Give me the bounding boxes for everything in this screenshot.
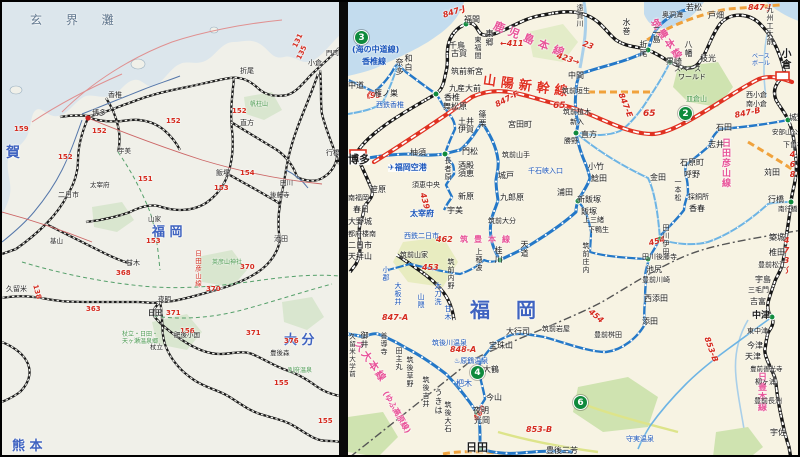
map-label: 筑前新宮 [451,68,483,76]
map-label: 中道 [348,82,364,90]
map-label: 鯰田 [591,175,607,183]
map-label: 夜明 [158,296,171,303]
map-label: 甘木 [126,260,140,267]
map-label: 宇美 [118,148,131,155]
map-label: 豊後三芳 [546,447,578,455]
map-label: 春日 [353,206,369,214]
map-label: ←411 [500,40,523,48]
map-label: 吉富 [750,298,766,306]
map-label: 宮田町 [508,121,532,129]
map-label: 中間 [568,72,584,80]
map-label: 370 [206,286,221,293]
map-label: 天津 [745,353,761,361]
map-label: 筑前大分 [488,218,516,225]
map-label: 太宰府 [410,210,434,218]
map-label: 山隈 [417,293,424,309]
map-label: 志井 [708,141,724,149]
map-label: 戸畑 [708,12,724,20]
map-label: 玄 界 灘 [30,14,124,26]
map-label: 363 [86,306,101,313]
map-label: 筑後草野 [406,356,413,388]
map-label: 枝光 [700,55,716,63]
map-label: 豊後森 [270,350,290,357]
map-label: 添田 [642,318,658,326]
map-label: 三毛門 [748,287,769,294]
map-label: 筑豊本線 [460,236,516,244]
map-label: 西添田 [644,295,668,303]
map-label: 847-J [442,5,466,20]
map-label: 香椎 [444,94,460,102]
map-label: 筑前内野 [447,258,454,290]
map-label: ✈福岡空港 [388,164,427,172]
map-label: 847-F [494,90,520,109]
map-label: 新原 [458,193,474,201]
map-label: 847-A [382,314,408,322]
map-label: 日田彦山線 [194,250,201,288]
map-label: 奈多 [395,58,403,76]
map-label: 奥洞海 [662,12,683,19]
map-label: 小倉 [308,60,322,67]
map-label: 大行司 [506,328,530,336]
map-label: 久留米大学前 [348,333,355,378]
map-label: 折尾 [240,68,254,75]
numbered-circle-marker: 4 [470,365,485,380]
map-label: 847-B [734,107,761,120]
map-label: 西小倉 [746,92,767,99]
map-label: 筑前山家 [400,252,428,259]
map-label: (ゆふ高原線) [381,390,412,435]
map-label: 遠賀川 [576,4,583,28]
panel-divider [339,2,348,457]
map-label: 桂川 [494,246,502,264]
map-label: 浦田 [557,189,573,197]
map-label: 371 [166,310,181,317]
map-label: 152 [92,128,107,135]
map-label: 筑後吉井 [422,376,429,408]
map-label: 下曽根 [783,142,800,149]
map-label: 豊前長洲 [754,398,782,405]
map-label: 上三緒 [583,217,604,224]
map-label: 155 [274,380,289,387]
map-label: 154 [240,170,255,177]
map-label: 847-E [617,92,634,119]
map-label: 雁ノ巣 [374,90,398,98]
map-label: 小郡 [382,266,389,282]
map-label: 小竹 [588,163,604,171]
map-label: 上穂波 [475,248,482,272]
map-label: 宝珠山 [489,342,513,350]
map-label: 一本松 [674,178,681,202]
map-label: 田主丸 [395,347,402,371]
map-label: 池尻 [646,266,662,274]
map-label: 皿倉山 [686,96,707,103]
map-label: 福間 [464,16,480,24]
map-label: 今山 [486,394,502,402]
map-label: 夜明 [473,407,489,415]
numbered-circle-marker: 3 [354,30,369,45]
map-label: 筑前山手 [502,152,530,159]
map-label: 太宰府 [90,182,110,189]
map-label: 新入 [570,119,584,126]
map-label: 東中津 [747,328,768,335]
map-label: 153 [214,185,229,192]
map-label: 南小倉 [746,101,767,108]
map-label: 都府楼南 [348,231,376,238]
map-label: 別府温泉 [288,368,312,374]
map-label: 久留米 [6,286,27,293]
map-label: 筑前垣生 [562,88,590,95]
map-label: 飯塚 [216,170,230,177]
map-label: 新飯塚 [577,196,601,204]
map-label: 152 [232,108,247,115]
map-label: 南行橋 [778,206,798,213]
map-label: 454 [587,308,605,325]
map-label: 篠栗 [478,110,486,128]
map-label: 賀 [6,146,20,160]
map-label: 長者原 [444,157,451,181]
map-label: ボール [752,61,770,67]
map-label: 田川 [280,180,293,187]
map-label: 439 [418,192,430,210]
map-label: 九郎原 [500,194,524,202]
map-label: 大鶴 [483,366,499,374]
map-label: 香春 [689,205,705,213]
map-label: 守実温泉 [626,436,654,443]
map-label: 853-B [702,336,718,363]
map-label: ワールド [678,74,706,81]
map-label: 大板井 [394,282,401,306]
map-label: 直方 [581,131,597,139]
map-label: 468 [788,150,796,180]
map-label: 香椎 [108,92,122,99]
modern-map-panel: 鹿児島本線山陽新幹線筑豊本線日田彦山線久大本線(ゆふ高原線)日豊本線462筑豊本… [348,2,800,457]
map-label: 筑後大石 [444,401,451,433]
map-label: 椎田 [769,249,785,257]
numbered-circle-marker: 6 [573,395,588,410]
map-label: 博多 [92,110,106,117]
map-label: 南福岡 [348,195,369,202]
map-label: 筑前岩屋 [542,326,570,333]
map-label: 古賀 [451,50,467,58]
map-label: 水巻 [622,18,630,36]
map-label: 今津 [747,342,763,350]
map-label: 採銅所 [688,194,709,201]
map-label: 東福間 [474,36,481,60]
map-label: 豊前善光寺 [750,366,783,373]
map-label: 光岡 [474,417,490,425]
map-label: 呼野 [684,171,700,179]
map-label: 田川伊田 [662,224,669,256]
map-label: 159 [14,126,29,133]
map-label: 423→ [556,52,581,67]
map-label: 直方 [240,120,254,127]
map-label: スペース [674,66,701,73]
map-label: 376 [284,338,299,345]
map-label: 城戸 [498,172,514,180]
map-label: 豊前川崎 [642,277,670,284]
map-label: 添田 [274,236,288,243]
map-label: 天道 [520,240,528,258]
map-label: 152 [58,154,73,161]
map-label: 65 [643,110,656,119]
map-label: 23 [581,40,594,51]
map-label: 善導寺 [380,332,387,356]
map-label: 後藤寺 [270,192,290,199]
map-label: 日田 [466,442,488,453]
map-label: 勝野 [564,138,578,145]
map-label: 天拝山 [348,253,372,261]
map-label: 福岡 [470,300,562,320]
map-label: 門司 [326,50,339,57]
map-label: 豊前桝田 [594,332,622,339]
map-label: 368 [116,270,131,277]
map-label: 山陽新幹線 [482,74,573,99]
map-label: 八幡 [684,40,692,58]
map-label: うきは [434,388,442,415]
map-label: 二日市 [348,242,372,250]
map-label: 熊 本 [12,440,43,453]
map-label: 杷木 [456,380,472,388]
map-label: 千石峡入口 [528,168,563,175]
map-label: 筑前植木 [563,109,591,116]
map-label: 和白 [404,54,412,72]
map-label: 大野城 [348,218,372,226]
map-label: 日田 [148,310,162,317]
map-label: (海の中道線) [352,46,399,54]
map-label: 須恵 [458,170,474,178]
map-label: 城野 [789,114,800,122]
map-label: 石原町 [680,159,704,167]
map-label: 須恵中央 [412,182,440,189]
map-label: 138 [31,284,42,300]
map-label: 宇島 [755,276,771,284]
map-label: 天ヶ瀬温泉郷 [122,339,158,345]
map-label: 柳ヶ浦 [755,379,776,386]
map-label: 門松 [462,148,478,156]
map-label: 151 [138,176,153,183]
map-label: 山家 [148,216,161,223]
map-label: 飯塚 [581,208,597,216]
map-label: 柚須 [410,149,426,157]
map-label: 笹原 [370,186,386,194]
numbered-circle-marker: 2 [678,106,693,121]
map-label: 370 [240,264,255,271]
map-label: 下鴨生 [588,227,609,234]
map-label: 九産大前 [449,85,481,93]
map-label: 甘木 [444,305,451,321]
map-label: 九州工大前 [766,6,773,46]
map-label: 中津 [752,312,770,321]
map-label: 田川後藤寺 [642,254,677,261]
map-label: 筑後川温泉 [432,340,467,347]
map-label: 太刀洗 [434,282,441,306]
map-label: 二島 [652,26,660,44]
map-label: 153 [146,238,161,245]
map-label: 筑前庄内 [582,242,589,274]
map-label: 肥後小国 [174,332,200,339]
map-label: 行橋 [326,150,339,157]
map-label: 英彦山神社 [212,260,242,266]
map-label: 853-B [526,426,552,434]
map-label: 宇佐 [770,429,786,437]
map-label: 基山 [50,238,63,245]
map-label: 二日市 [58,192,79,199]
old-map-panel: 玄 界 灘賀福 岡大 分熊 本1591521521521521511311351… [2,2,339,457]
map-label: 155 [318,418,333,425]
map-label: 若松 [686,4,702,12]
map-label: 豊前松江 [758,262,786,269]
map-label: 石田 [716,124,732,132]
map-label: 西鉄二日市 [404,233,439,240]
map-label: 金田 [650,174,666,182]
map-label: 博多 [348,154,370,165]
map-label: ♨原鶴温泉 [454,358,488,365]
map-label: 折尾 [639,40,647,58]
map-label: 安部山公園 [772,129,800,136]
map-label: 453 [422,264,439,272]
map-label: 西鉄香椎 [376,102,404,109]
map-label: 築城 [769,234,785,242]
old-map-labels: 玄 界 灘賀福 岡大 分熊 本1591521521521521511311351… [2,2,339,457]
map-label: 東郷 [485,29,493,47]
map-label: 宇美 [447,207,463,215]
map-label: 舞松原 [443,103,467,111]
modern-map-labels: 鹿児島本線山陽新幹線筑豊本線日田彦山線久大本線(ゆふ高原線)日豊本線462筑豊本… [348,2,800,457]
map-label: 小倉 [779,48,789,70]
map-label: 苅田 [764,169,780,177]
map-label: 152 [166,118,181,125]
map-label: 行橋 [768,196,784,204]
map-label: 371 [246,330,261,337]
map-label: 帆柱山 [250,102,268,108]
map-label: 御井 [360,331,368,349]
map-label: 伊賀 [458,126,474,134]
map-label: 香椎線 [362,58,386,66]
map-label: 848-A [450,346,476,354]
map-comparison-stage: 玄 界 灘賀福 岡大 分熊 本1591521521521521511311351… [0,0,800,457]
